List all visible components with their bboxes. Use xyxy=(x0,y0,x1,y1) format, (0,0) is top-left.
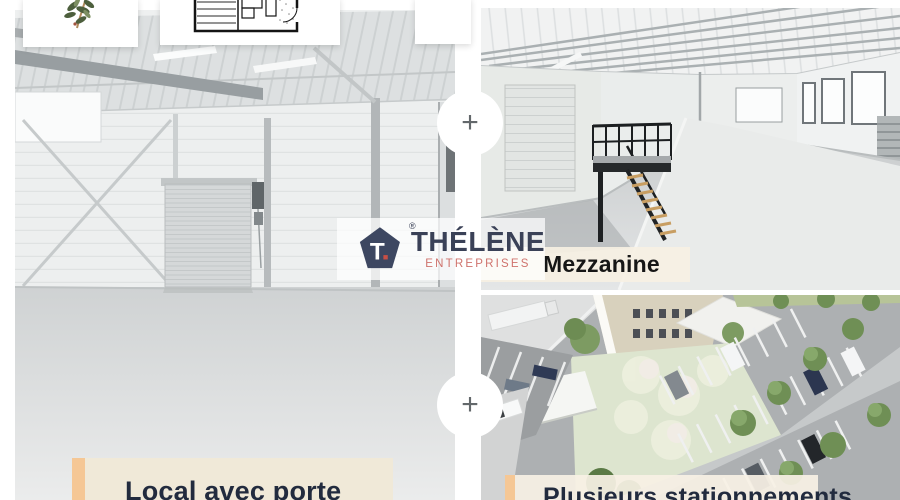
plus-divider-bottom-button[interactable]: + xyxy=(437,372,503,438)
plus-divider-top-button[interactable]: + xyxy=(437,90,503,156)
listing-photo-collage: Mezzanine Local avec porte Plusieurs sta… xyxy=(0,0,900,500)
brand-name: THÉLÈNE xyxy=(411,228,545,256)
brand-pentagon-icon: T xyxy=(359,223,401,275)
caption-local-label: Local avec porte xyxy=(125,476,341,500)
plus-icon: + xyxy=(461,390,479,420)
plant-illustration-icon xyxy=(23,0,138,47)
registered-mark: ® xyxy=(409,221,416,231)
brand-text-block: THÉLÈNE ENTREPRISES xyxy=(411,228,545,270)
photo-parking-aerial[interactable] xyxy=(481,295,900,500)
brand-logo: T ® THÉLÈNE ENTREPRISES xyxy=(337,218,545,280)
caption-local: Local avec porte xyxy=(72,458,393,500)
caption-parking: Plusieurs stationnements xyxy=(505,475,818,500)
thumbnail-partial-card[interactable] xyxy=(415,0,471,44)
caption-parking-label: Plusieurs stationnements xyxy=(543,483,852,500)
parking-aerial-image xyxy=(481,295,900,500)
caption-mezzanine-label: Mezzanine xyxy=(543,251,660,278)
plus-icon: + xyxy=(461,108,479,138)
thumbnail-plant-card[interactable] xyxy=(23,0,138,47)
brand-monogram: T xyxy=(370,238,385,265)
brand-subtitle: ENTREPRISES xyxy=(411,258,545,270)
thumbnail-floorplan-card[interactable] xyxy=(160,0,340,45)
floorplan-icon xyxy=(160,0,340,45)
